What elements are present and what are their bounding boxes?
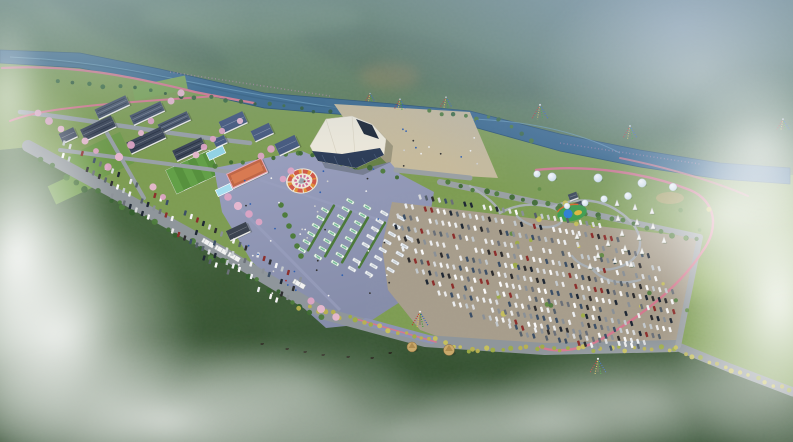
tree bbox=[524, 345, 529, 350]
tree bbox=[319, 314, 325, 320]
person bbox=[420, 153, 422, 155]
cherry-tree bbox=[148, 118, 155, 125]
person bbox=[377, 218, 379, 220]
dome-tent bbox=[564, 203, 570, 209]
tree bbox=[308, 305, 312, 309]
person bbox=[295, 289, 297, 291]
tree bbox=[610, 216, 615, 221]
person bbox=[252, 255, 254, 257]
cherry-tree bbox=[82, 138, 89, 145]
person bbox=[248, 245, 250, 247]
person bbox=[294, 271, 296, 273]
person bbox=[440, 153, 442, 155]
person bbox=[244, 180, 246, 182]
bush bbox=[574, 222, 579, 227]
person bbox=[476, 163, 478, 165]
cherry-tree bbox=[35, 110, 42, 117]
cherry-tree bbox=[237, 118, 243, 124]
tree bbox=[695, 237, 699, 241]
person bbox=[285, 280, 287, 282]
tree bbox=[772, 384, 776, 388]
cherry-tree bbox=[258, 153, 265, 160]
tree bbox=[470, 188, 474, 192]
tree bbox=[494, 191, 499, 196]
tree bbox=[119, 84, 123, 88]
tree bbox=[762, 380, 766, 384]
tree bbox=[298, 253, 304, 259]
person bbox=[428, 146, 430, 148]
tree bbox=[74, 180, 80, 186]
tree bbox=[380, 169, 385, 174]
tree bbox=[282, 212, 288, 218]
tree bbox=[286, 223, 292, 229]
person bbox=[369, 277, 371, 279]
tree bbox=[95, 188, 101, 194]
cherry-tree bbox=[219, 128, 225, 134]
tree bbox=[558, 349, 562, 353]
tree bbox=[643, 347, 647, 351]
aerial-render bbox=[0, 0, 793, 442]
person bbox=[299, 233, 301, 235]
tree bbox=[659, 229, 664, 234]
person bbox=[317, 260, 319, 262]
tree bbox=[396, 331, 400, 335]
tree bbox=[650, 348, 654, 352]
tree bbox=[300, 106, 304, 110]
tree bbox=[668, 349, 672, 353]
dome-tent bbox=[669, 183, 677, 191]
dome-tent bbox=[638, 179, 646, 187]
tree bbox=[276, 289, 280, 293]
bush bbox=[698, 228, 702, 232]
tree bbox=[239, 99, 243, 103]
cherry-tree bbox=[138, 130, 144, 136]
tree bbox=[223, 98, 228, 103]
tree bbox=[508, 346, 513, 351]
tree bbox=[266, 288, 271, 293]
tree bbox=[63, 174, 69, 180]
bush bbox=[685, 308, 689, 312]
tree bbox=[509, 194, 515, 200]
tree bbox=[501, 348, 505, 352]
cherry-tree bbox=[104, 163, 111, 170]
tree bbox=[255, 277, 259, 281]
cherry-tree bbox=[210, 136, 216, 142]
person bbox=[415, 147, 417, 149]
person bbox=[402, 128, 404, 130]
bush bbox=[661, 282, 664, 285]
cherry-tree bbox=[267, 145, 275, 153]
tree bbox=[445, 179, 450, 184]
tree bbox=[118, 200, 122, 204]
tree bbox=[353, 317, 358, 322]
person bbox=[365, 190, 367, 192]
tree bbox=[296, 306, 301, 311]
tree bbox=[290, 233, 296, 239]
tree bbox=[518, 346, 522, 350]
tree bbox=[50, 163, 55, 168]
cherry-tree bbox=[234, 202, 242, 210]
person bbox=[306, 237, 308, 239]
person bbox=[476, 120, 478, 122]
dome-tent bbox=[594, 174, 602, 182]
tree bbox=[133, 86, 137, 90]
tree bbox=[87, 82, 91, 86]
tree bbox=[487, 115, 490, 118]
bush bbox=[706, 207, 711, 212]
person bbox=[368, 250, 370, 252]
person bbox=[403, 165, 405, 167]
tree bbox=[532, 200, 538, 206]
person bbox=[412, 140, 414, 142]
tree bbox=[307, 310, 312, 315]
tree bbox=[109, 199, 113, 203]
person bbox=[342, 256, 344, 258]
person bbox=[273, 270, 275, 272]
cherry-tree bbox=[160, 194, 166, 200]
tree bbox=[81, 186, 88, 193]
person bbox=[270, 240, 272, 242]
tree bbox=[220, 258, 226, 264]
cherry-tree bbox=[287, 167, 294, 174]
tree bbox=[209, 95, 213, 99]
tree bbox=[440, 112, 444, 116]
person bbox=[473, 137, 475, 139]
person bbox=[301, 228, 303, 230]
tree bbox=[173, 233, 178, 238]
tree bbox=[385, 328, 390, 333]
tree bbox=[405, 331, 408, 334]
tree bbox=[164, 92, 167, 95]
tree bbox=[529, 138, 534, 143]
tree bbox=[290, 300, 294, 304]
tree bbox=[669, 233, 675, 239]
tree bbox=[433, 336, 438, 341]
tree bbox=[520, 132, 524, 136]
tree bbox=[282, 104, 285, 107]
person bbox=[271, 292, 273, 294]
tree bbox=[490, 348, 495, 353]
tree bbox=[535, 347, 539, 351]
tree bbox=[395, 175, 399, 179]
tree bbox=[756, 376, 761, 381]
tree bbox=[470, 347, 475, 352]
tree bbox=[451, 112, 455, 116]
tree bbox=[467, 350, 471, 354]
cherry-tree bbox=[127, 141, 135, 149]
person bbox=[388, 282, 390, 284]
tree bbox=[738, 370, 742, 374]
tree bbox=[464, 114, 468, 118]
tree bbox=[271, 156, 275, 160]
tree bbox=[496, 118, 500, 122]
tree bbox=[294, 243, 300, 249]
tree bbox=[377, 323, 382, 328]
tree bbox=[698, 355, 703, 360]
tree bbox=[552, 346, 556, 350]
person bbox=[257, 254, 259, 256]
person bbox=[358, 264, 360, 266]
tree bbox=[241, 160, 245, 164]
person bbox=[315, 256, 317, 258]
tree bbox=[458, 345, 462, 349]
person bbox=[304, 229, 306, 231]
tree bbox=[298, 151, 303, 156]
person bbox=[386, 274, 388, 276]
person bbox=[327, 180, 329, 182]
bush bbox=[678, 208, 683, 213]
tree bbox=[166, 227, 171, 232]
tree bbox=[780, 384, 784, 388]
cherry-tree bbox=[256, 219, 263, 226]
person bbox=[304, 181, 306, 183]
bush bbox=[538, 187, 542, 191]
tree bbox=[484, 188, 490, 194]
person bbox=[249, 203, 251, 205]
person bbox=[341, 274, 343, 276]
person bbox=[245, 205, 247, 207]
tree bbox=[427, 337, 431, 341]
bush bbox=[683, 236, 687, 240]
cherry-tree bbox=[201, 144, 208, 151]
cherry-tree bbox=[332, 313, 339, 320]
person bbox=[287, 284, 289, 286]
cherry-tree bbox=[307, 297, 314, 304]
tree bbox=[412, 334, 416, 338]
tree bbox=[689, 354, 694, 359]
tree bbox=[328, 109, 332, 113]
bush bbox=[596, 216, 601, 221]
person bbox=[274, 228, 276, 230]
tree bbox=[521, 198, 525, 202]
person bbox=[460, 156, 462, 158]
person bbox=[314, 205, 316, 207]
cherry-tree bbox=[45, 117, 53, 125]
bush bbox=[674, 298, 678, 302]
person bbox=[319, 191, 321, 193]
person bbox=[324, 229, 326, 231]
person bbox=[403, 149, 405, 151]
tree bbox=[443, 340, 448, 345]
cherry-tree bbox=[168, 98, 175, 105]
tree bbox=[484, 345, 489, 350]
tree bbox=[621, 218, 626, 223]
tree bbox=[368, 322, 373, 327]
tree bbox=[622, 349, 627, 354]
cherry-tree bbox=[58, 126, 65, 133]
tree bbox=[152, 219, 158, 225]
dome-tent bbox=[582, 200, 588, 206]
bush bbox=[581, 313, 585, 317]
tree bbox=[545, 201, 550, 206]
person bbox=[384, 242, 386, 244]
tree bbox=[674, 345, 678, 349]
cherry-tree bbox=[280, 176, 287, 183]
person bbox=[270, 177, 272, 179]
tree bbox=[253, 102, 256, 105]
tree bbox=[427, 109, 431, 113]
person bbox=[238, 264, 240, 266]
person bbox=[374, 230, 376, 232]
tree bbox=[645, 226, 650, 231]
tree bbox=[192, 96, 197, 101]
tree bbox=[724, 366, 728, 370]
cherry-tree bbox=[93, 148, 99, 154]
person bbox=[367, 178, 369, 180]
tree bbox=[348, 315, 352, 319]
tree bbox=[576, 346, 581, 351]
dome-tent bbox=[548, 173, 556, 181]
bush bbox=[647, 291, 652, 296]
person bbox=[405, 130, 407, 132]
tree bbox=[510, 125, 514, 129]
tree bbox=[100, 84, 105, 89]
dome-tent bbox=[601, 196, 608, 203]
person bbox=[470, 150, 472, 152]
person bbox=[317, 211, 319, 213]
cherry-tree bbox=[224, 193, 232, 201]
tree bbox=[71, 81, 75, 85]
tree bbox=[56, 79, 60, 83]
tree bbox=[476, 349, 480, 353]
tree bbox=[362, 320, 367, 325]
cherry-tree bbox=[245, 210, 253, 218]
cherry-tree bbox=[149, 183, 156, 190]
tree bbox=[787, 388, 792, 393]
tree bbox=[149, 88, 153, 92]
tree bbox=[459, 184, 463, 188]
cherry-tree bbox=[317, 305, 325, 313]
person bbox=[323, 170, 325, 172]
dome-tent bbox=[534, 171, 541, 178]
tree bbox=[268, 102, 272, 106]
person bbox=[278, 202, 280, 204]
tree bbox=[715, 362, 719, 366]
tree bbox=[229, 160, 233, 164]
tree bbox=[708, 361, 712, 365]
tree bbox=[591, 349, 595, 353]
dome-tent bbox=[624, 192, 631, 199]
person bbox=[369, 292, 371, 294]
cherry-tree bbox=[177, 89, 184, 96]
person bbox=[316, 269, 318, 271]
person bbox=[328, 295, 330, 297]
tree bbox=[684, 352, 688, 356]
tree bbox=[746, 373, 750, 377]
tree bbox=[312, 110, 315, 113]
cherry-tree bbox=[193, 152, 200, 159]
tree bbox=[38, 157, 44, 163]
tree bbox=[566, 346, 570, 350]
tree bbox=[540, 345, 544, 349]
person bbox=[373, 168, 375, 170]
cherry-tree bbox=[115, 153, 123, 161]
tree bbox=[659, 344, 664, 349]
tree bbox=[213, 164, 218, 169]
scene-canvas bbox=[0, 0, 793, 442]
tree bbox=[729, 368, 734, 373]
tree bbox=[129, 210, 135, 216]
tree bbox=[420, 336, 423, 339]
